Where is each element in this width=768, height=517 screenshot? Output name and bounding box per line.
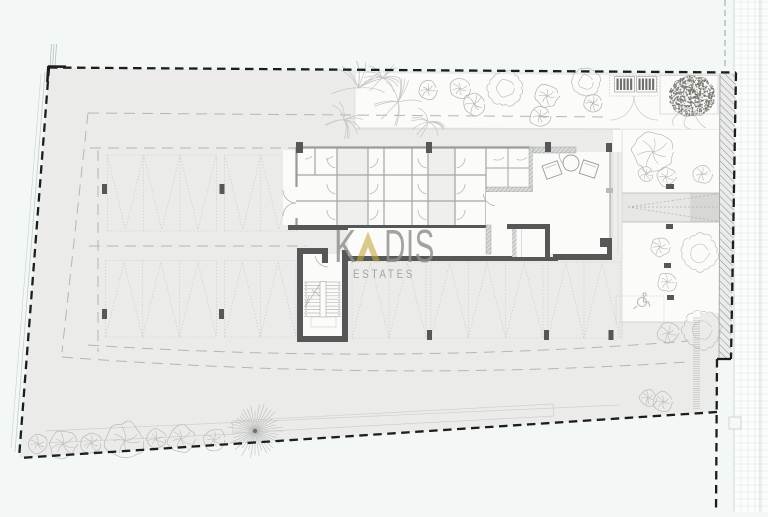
svg-text:ESTATES: ESTATES	[353, 268, 415, 281]
svg-text:DIS: DIS	[384, 221, 435, 272]
svg-text:K: K	[334, 222, 356, 272]
